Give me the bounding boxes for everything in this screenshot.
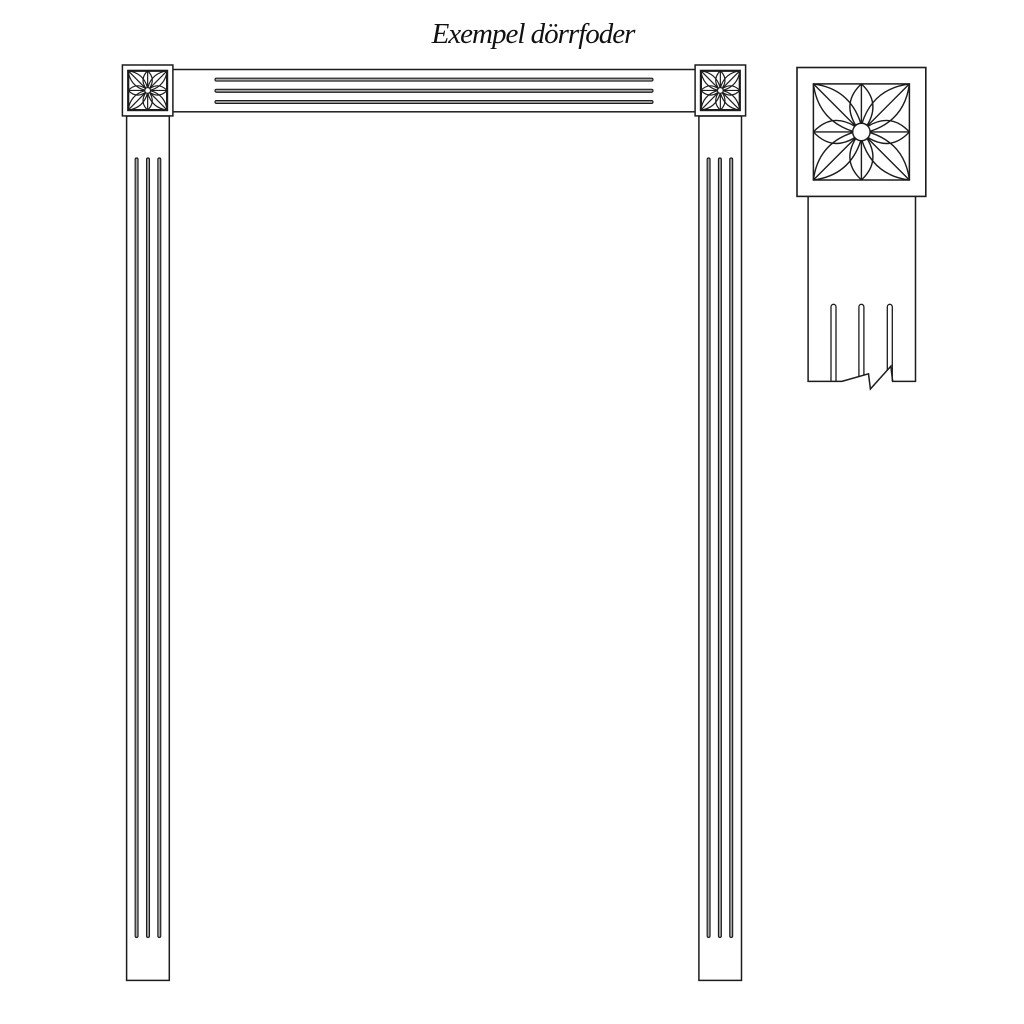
svg-text:Exempel dörrfoder: Exempel dörrfoder xyxy=(431,18,637,50)
